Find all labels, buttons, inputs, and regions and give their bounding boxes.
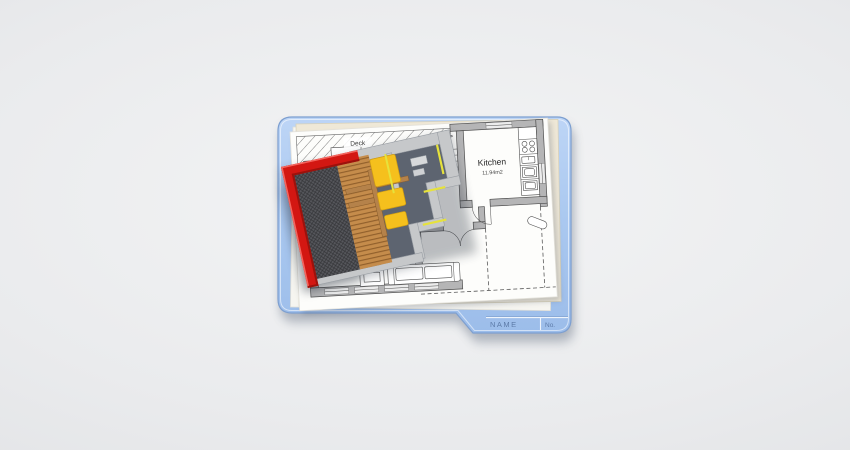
- stove-burner: [529, 141, 534, 146]
- stove-burner: [522, 141, 527, 146]
- folder-tab-name-label: NAME: [490, 320, 518, 329]
- kitchen-label: Kitchen: [477, 156, 506, 168]
- sofa-cushion: [424, 265, 452, 278]
- kitchen-counter: [518, 127, 540, 196]
- illustration-canvas: NAME No. Deck: [0, 0, 850, 450]
- kitchen-area-label: 11.94m2: [482, 170, 503, 177]
- stove-burner: [530, 147, 535, 152]
- blueprint-folder-illustration: NAME No. Deck: [0, 0, 850, 450]
- deck-label: Deck: [350, 140, 366, 148]
- folder-tab-number-label: No.: [545, 322, 555, 329]
- stove-burner: [522, 147, 527, 152]
